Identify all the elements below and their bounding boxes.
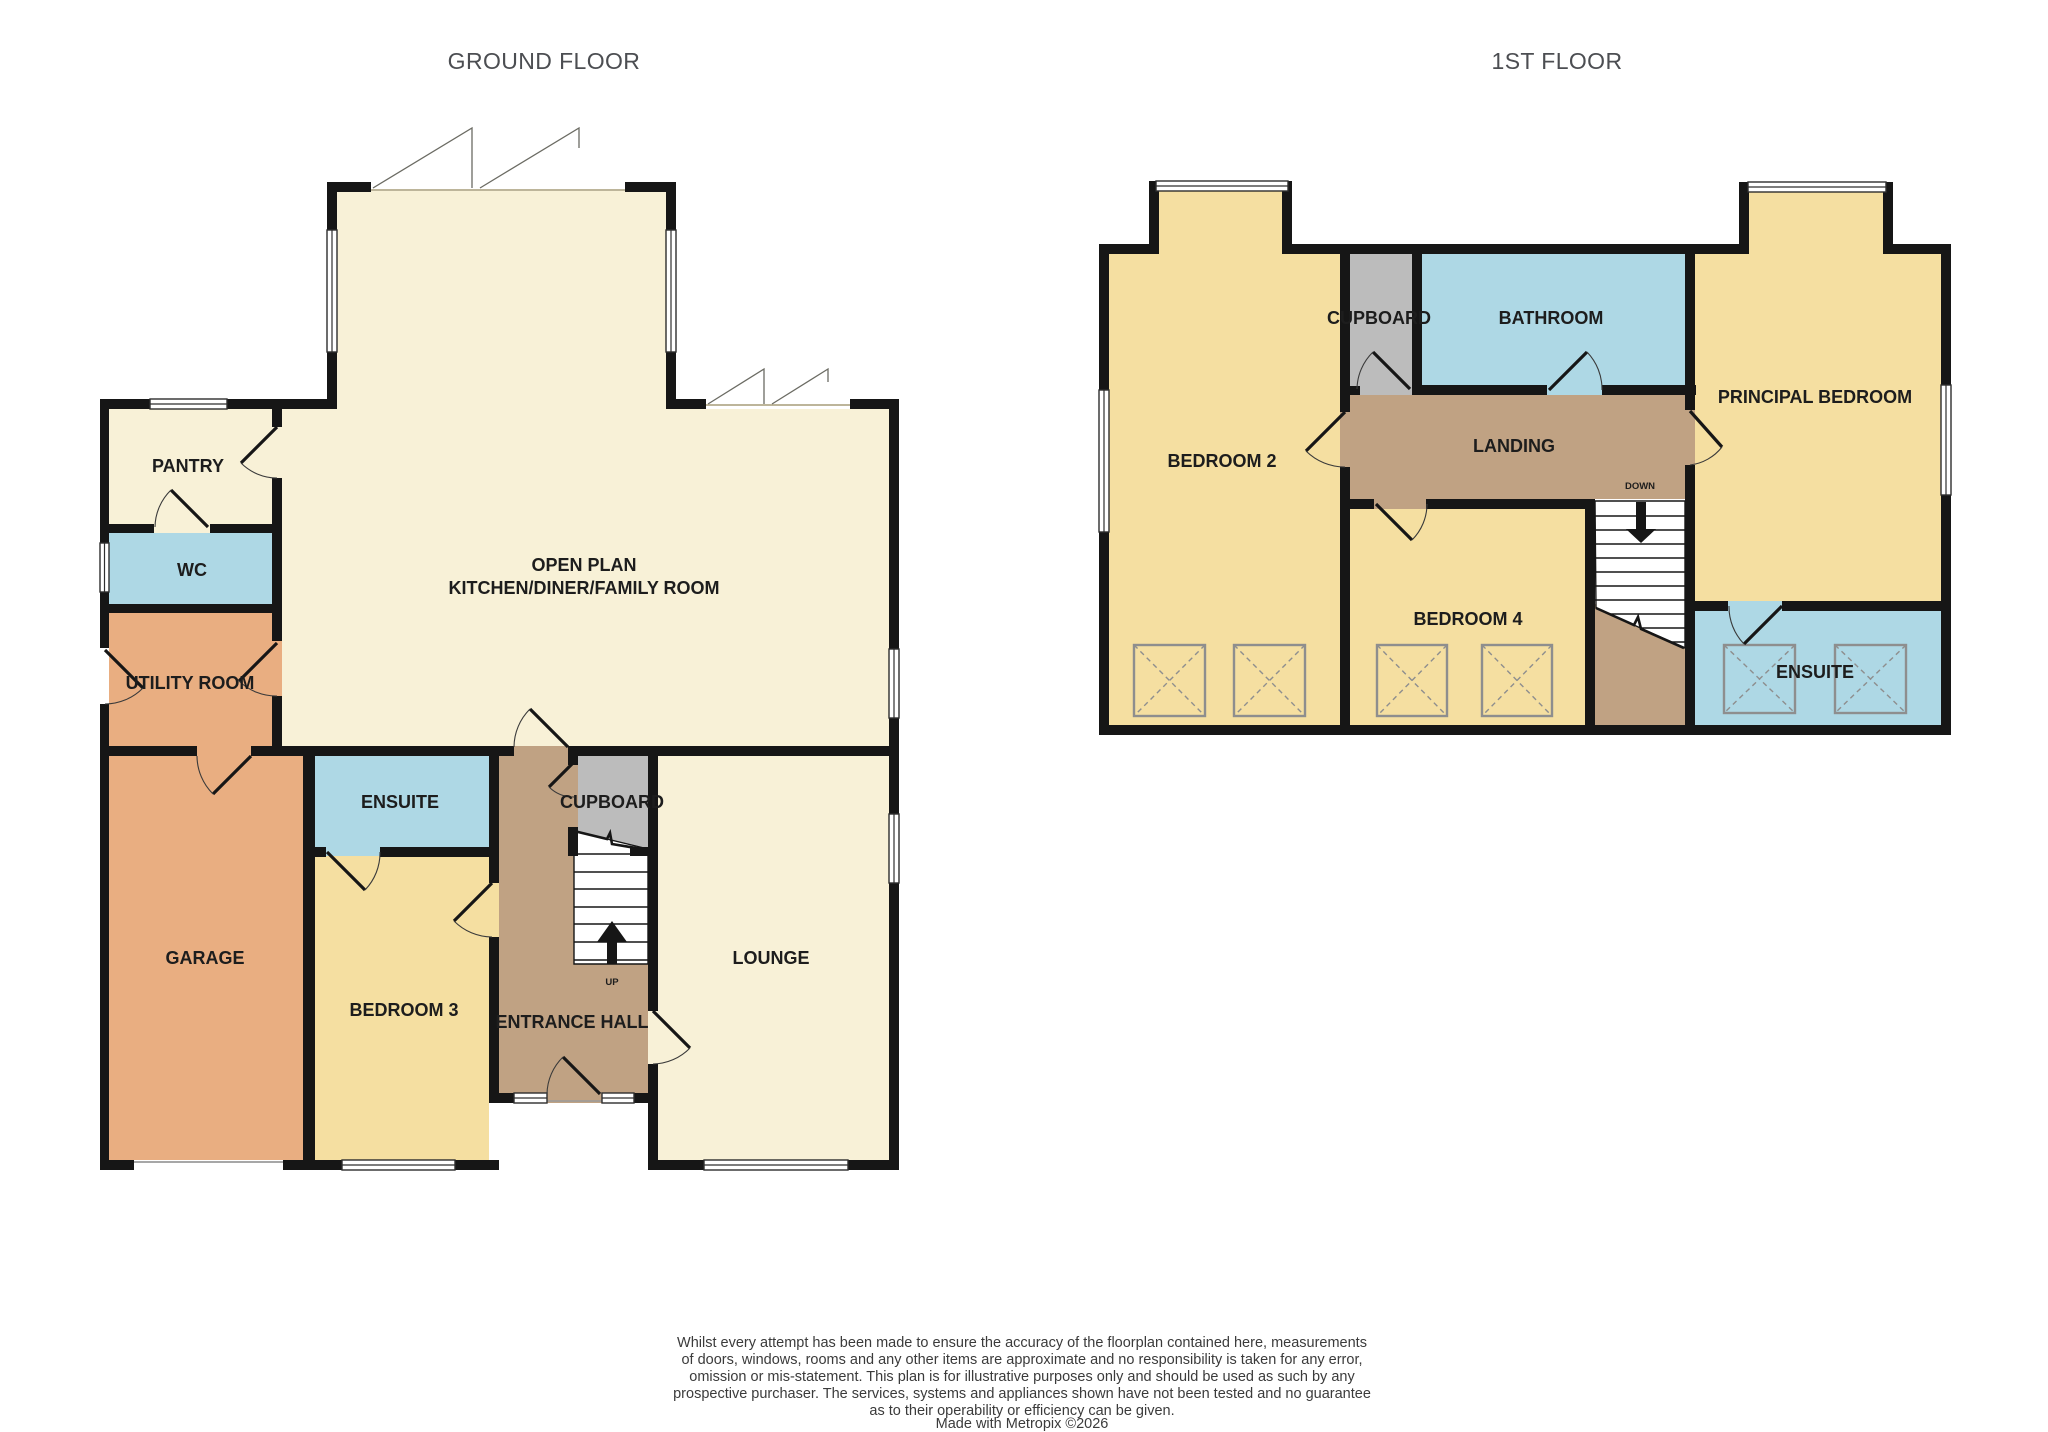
svg-text:PRINCIPAL BEDROOM: PRINCIPAL BEDROOM (1718, 387, 1912, 407)
svg-text:CUPBOARD: CUPBOARD (1327, 308, 1431, 328)
svg-text:BEDROOM 4: BEDROOM 4 (1413, 609, 1522, 629)
svg-text:prospective purchaser. The ser: prospective purchaser. The services, sys… (673, 1386, 1371, 1402)
svg-text:ENSUITE: ENSUITE (1776, 662, 1854, 682)
svg-text:DOWN: DOWN (1625, 481, 1655, 492)
svg-text:LOUNGE: LOUNGE (732, 948, 809, 968)
svg-text:UP: UP (605, 977, 619, 988)
svg-text:BATHROOM: BATHROOM (1499, 308, 1604, 328)
svg-text:OPEN PLAN: OPEN PLAN (531, 555, 636, 575)
svg-text:of doors, windows, rooms and a: of doors, windows, rooms and any other i… (681, 1352, 1362, 1368)
svg-text:LANDING: LANDING (1473, 436, 1555, 456)
svg-text:1ST FLOOR: 1ST FLOOR (1492, 48, 1623, 74)
svg-text:GROUND FLOOR: GROUND FLOOR (448, 48, 641, 74)
svg-text:UTILITY ROOM: UTILITY ROOM (126, 673, 255, 693)
svg-text:BEDROOM 2: BEDROOM 2 (1167, 451, 1276, 471)
svg-text:omission or mis-statement. Thi: omission or mis-statement. This plan is … (689, 1369, 1355, 1385)
svg-text:CUPBOARD: CUPBOARD (560, 792, 664, 812)
svg-text:WC: WC (177, 560, 207, 580)
svg-text:Whilst every attempt has been: Whilst every attempt has been made to en… (677, 1335, 1367, 1351)
svg-text:BEDROOM 3: BEDROOM 3 (349, 1000, 458, 1020)
svg-text:Made with Metropix ©2026: Made with Metropix ©2026 (936, 1416, 1109, 1432)
svg-text:PANTRY: PANTRY (152, 456, 224, 476)
svg-text:KITCHEN/DINER/FAMILY ROOM: KITCHEN/DINER/FAMILY ROOM (448, 578, 719, 598)
svg-text:GARAGE: GARAGE (165, 948, 244, 968)
svg-text:ENTRANCE HALL: ENTRANCE HALL (496, 1012, 649, 1032)
svg-text:ENSUITE: ENSUITE (361, 792, 439, 812)
